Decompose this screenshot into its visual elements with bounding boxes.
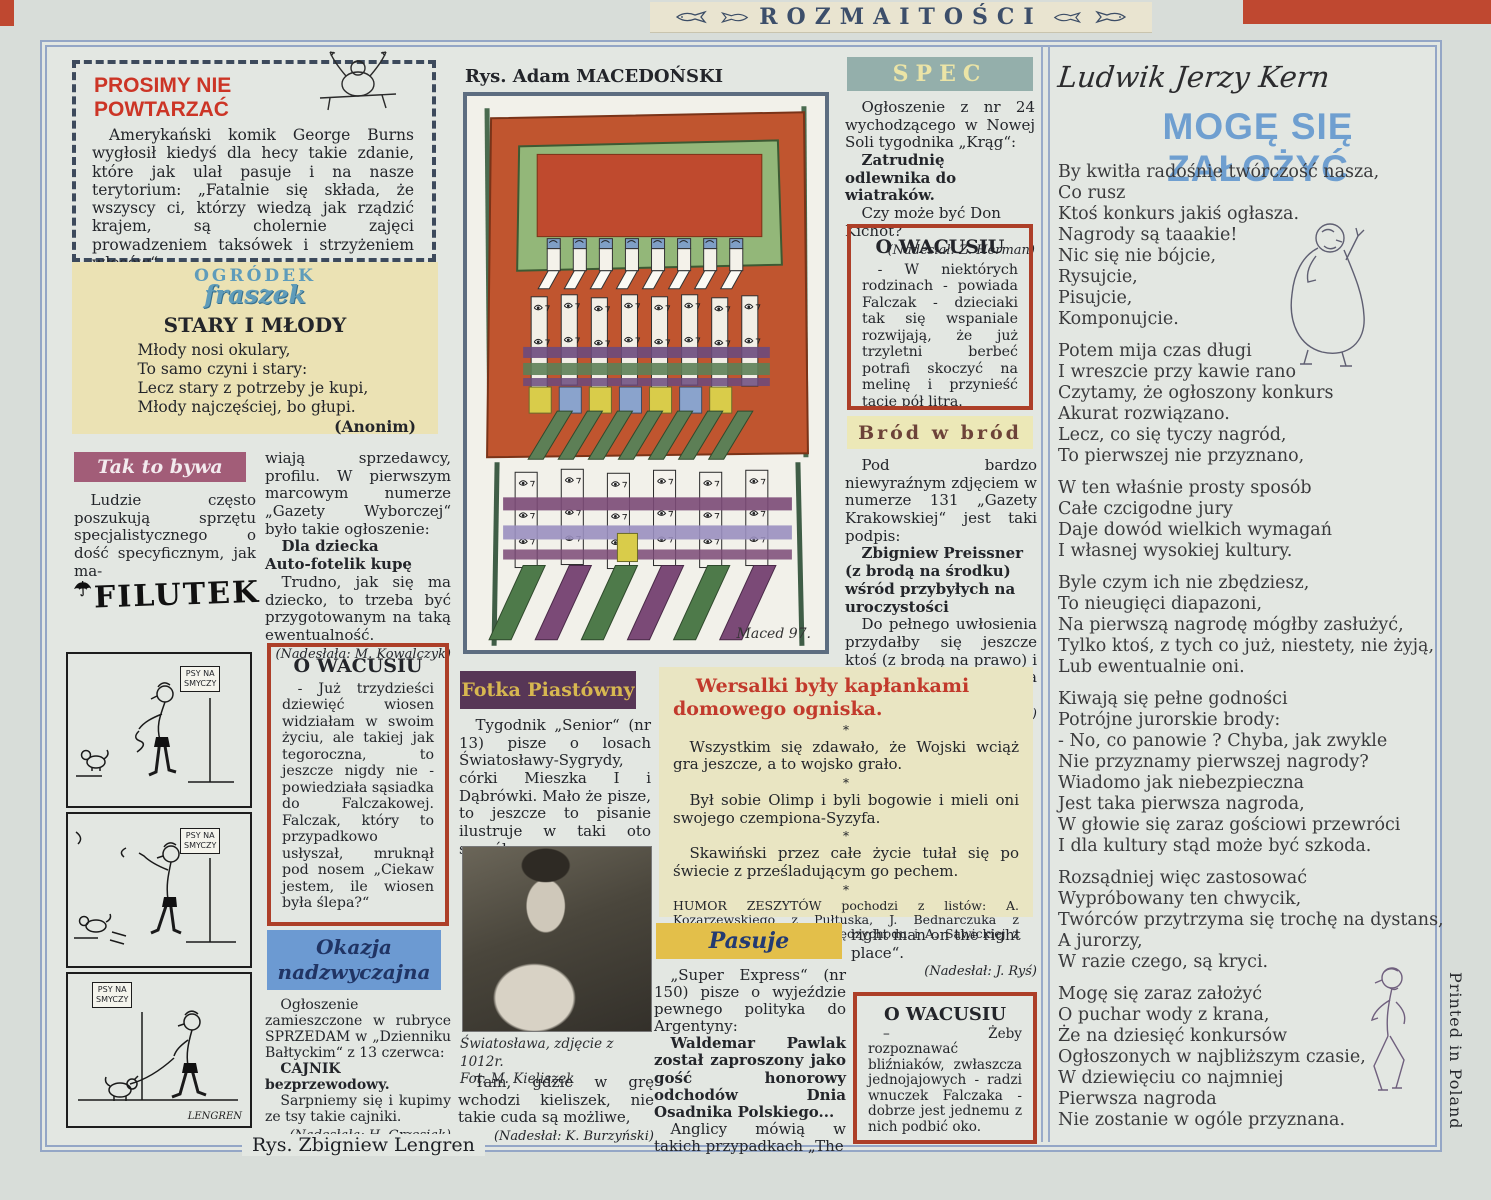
poem-stanza: W ten właśnie prosty sposób Całe czcigod… [1058,478,1448,562]
comic-sign: PSY NA SMYCZY [180,828,220,854]
spec-intro: Ogłoszenie z nr 24 wychodzącego w Nowej … [845,99,1035,152]
fraszka-author: (Anonim) [72,417,438,436]
top-right-red-bar [1243,0,1491,24]
tak-col2-text: wiają sprzedawcy, profilu. W pierwszym m… [265,450,451,538]
comic-strip: PSY NA SMYCZY PSY NA SMYCZY [66,652,252,1132]
comic-signature: LENGREN [188,1111,242,1122]
masthead: ROZMAITOŚCI [650,2,1152,33]
poem-stanza: By kwitła radośnie twórczość nasza, Co r… [1058,162,1448,330]
o-wacusiu-3-heading: O WACUSIU [868,1004,1022,1025]
fotka-body: Tygodnik „Senior“ (nr 13) pisze o losach… [459,717,651,859]
brod-intro: Pod bardzo niewyraźnym zdjęciem w numerz… [845,457,1037,545]
tak-col1-text: Ludzie często poszukują sprzętu specjali… [74,492,256,580]
wersalki-item: Był sobie Olimp i byli bogowie i mieli o… [673,792,1019,827]
masthead-title: ROZMAITOŚCI [759,4,1042,30]
wersalki-box: Wersalki były kapłankami domowego ognisk… [659,667,1033,917]
o-wacusiu-box-1: O WACUSIU - Już trzydzieści dziewięć wio… [267,643,449,926]
filutek-logo: ☂FILUTEK [73,575,260,616]
fotka-heading: Fotka Piastówny [460,671,636,709]
fish-icon [675,10,709,24]
pasuje-heading: Pasuje [656,923,842,959]
comic-sign: PSY NA SMYCZY [92,982,132,1008]
okazja-heading: Okazja nadzwyczajna [267,930,441,990]
printed-in-poland: Printed in Poland [1446,972,1465,1130]
pasuje-cont-text: right man on the right place“. [851,927,1037,962]
o-wacusiu-box-3: O WACUSIU – Żeby rozpoznawać bliźniaków,… [853,992,1037,1144]
tak-col2: wiają sprzedawcy, profilu. W pierwszym m… [265,450,451,662]
fotka-after: Tam, gdzie w grę wchodzi kieliszek, nie … [458,1074,654,1144]
star-separator: * [673,884,1019,896]
comic-panel-1-drawing [68,654,250,806]
comic-panel-3: PSY NA SMYCZY LENGREN [66,972,252,1128]
okazja-rest: Sarpniemy się i kupimy ze tsy takie cajn… [265,1094,451,1126]
okazja-bold: CAJNIK bezprzewodowy. [265,1062,451,1094]
macedonski-caption: Rys. Adam MACEDOŃSKI [465,66,723,87]
comic-sign: PSY NA SMYCZY [180,666,220,692]
wersalki-item: Wszystkim się zdawało, że Wojski wciąż g… [673,739,1019,774]
comic-panel-2: PSY NA SMYCZY [66,812,252,968]
fotka-credit: (Nadesłał: K. Burzyński) [458,1129,654,1144]
pasuje-section: „Super Express“ (nr 150) pisze o wyjeźdz… [654,967,846,1155]
tak-rest-text: Trudno, jak się ma dziecko, to trzeba by… [265,574,451,645]
okazja-section: Ogłoszenie zamieszczone w rubryce SPRZED… [265,998,451,1143]
poem-stanza: Rozsądniej więc zastosować Wypróbowany t… [1058,868,1448,973]
fish-icon [1053,11,1083,24]
acrobat-cartoon [312,46,404,116]
star-separator: * [673,830,1019,842]
macedonski-drawing: Maced 97. [463,92,829,654]
macedonski-signature: Maced 97. [737,626,811,642]
o-wacusiu-1-body: - Już trzydzieści dziewięć wiosen widzia… [282,681,434,912]
okazja-intro: Ogłoszenie zamieszczone w rubryce SPRZED… [265,998,451,1062]
fotka-after-text: Tam, gdzie w grę wchodzi kieliszek, nie … [458,1074,654,1127]
pasuje-p2: Anglicy mówią w takich przypadkach „The [654,1121,846,1155]
o-wacusiu-2-heading: O WACUSIU [862,236,1018,258]
poem-stanza: Potem mija czas długi I wreszcie przy ka… [1058,341,1448,467]
brod-heading: Bród w bród [847,416,1033,449]
comic-panel-2-drawing [68,814,250,966]
prosimy-box: PROSIMY NIE POWTARZAĆ Amerykański komik … [72,60,436,262]
o-wacusiu-3-body: – Żeby rozpoznawać bliźniaków, zwłaszcza… [868,1027,1022,1135]
wersalki-heading: Wersalki były kapłankami domowego ognisk… [673,675,1019,721]
pasuje-p1: „Super Express“ (nr 150) pisze o wyjeźdz… [654,967,846,1035]
tak-ad-text: Dla dziecka Auto-fotelik kupę [265,538,451,573]
fraszka-box: OGRÓDEK fraszek STARY I MŁODY Młody nosi… [72,262,438,434]
star-separator: * [673,724,1019,736]
fraszka-logo: OGRÓDEK fraszek [72,268,438,307]
wersalki-item: Skawiński przez całe życie tułał się po … [673,845,1019,880]
tak-to-bywa-heading: Tak to bywa [74,452,246,482]
poem-stanza: Byle czym ich nie zbędziesz, To nieugięc… [1058,573,1448,678]
top-left-red-block [0,0,14,26]
o-wacusiu-box-2: O WACUSIU - W niektórych rodzinach - pow… [847,224,1033,410]
photo-swiatoslawa [462,846,652,1032]
poem-stanza: Kiwają się pełne godności Potrójne juror… [1058,689,1448,857]
star-separator: * [673,777,1019,789]
fish-icon [719,11,749,24]
prosimy-title: PROSIMY NIE POWTARZAĆ [94,74,231,122]
spec-bold: Zatrudnię odlewnika do wiatraków. [845,152,1035,205]
bottom-artist-credit: Rys. Zbigniew Lengren [242,1134,485,1156]
fish-icon [1093,10,1127,24]
pasuje-credit: (Nadesłał: J. Ryś) [851,964,1037,979]
macedonski-art [467,96,825,650]
pasuje-bold: Waldemar Pawlak został zaproszony jako g… [654,1035,846,1120]
fraszka-poem: Młody nosi okulary, To samo czyni i star… [138,341,373,417]
fraszka-title: STARY I MŁODY [72,313,438,337]
fat-man-cartoon [1272,212,1382,370]
newspaper-page: ROZMAITOŚCI PROSIMY NIE POWTARZAĆ Ameryk… [0,0,1491,1200]
o-wacusiu-2-body: - W niektórych rodzinach - powiada Falcz… [862,262,1018,410]
walking-man-cartoon [1352,962,1428,1098]
fraszka-logo-bottom: fraszek [72,282,438,307]
brod-bold: Zbigniew Preissner (z brodą na środku) w… [845,545,1037,616]
hat-icon: ☂ [73,577,94,602]
pasuje-continuation: right man on the right place“. (Nadesłał… [851,927,1037,979]
o-wacusiu-1-heading: O WACUSIU [282,655,434,677]
prosimy-body: Amerykański komik George Burns wygłosił … [92,126,414,272]
comic-panel-1: PSY NA SMYCZY [66,652,252,808]
column-separator [1041,46,1050,1142]
filutek-logo-text: FILUTEK [93,575,260,616]
spec-heading: SPEC [847,57,1033,91]
kern-author: Ludwik Jerzy Kern [1056,60,1331,94]
